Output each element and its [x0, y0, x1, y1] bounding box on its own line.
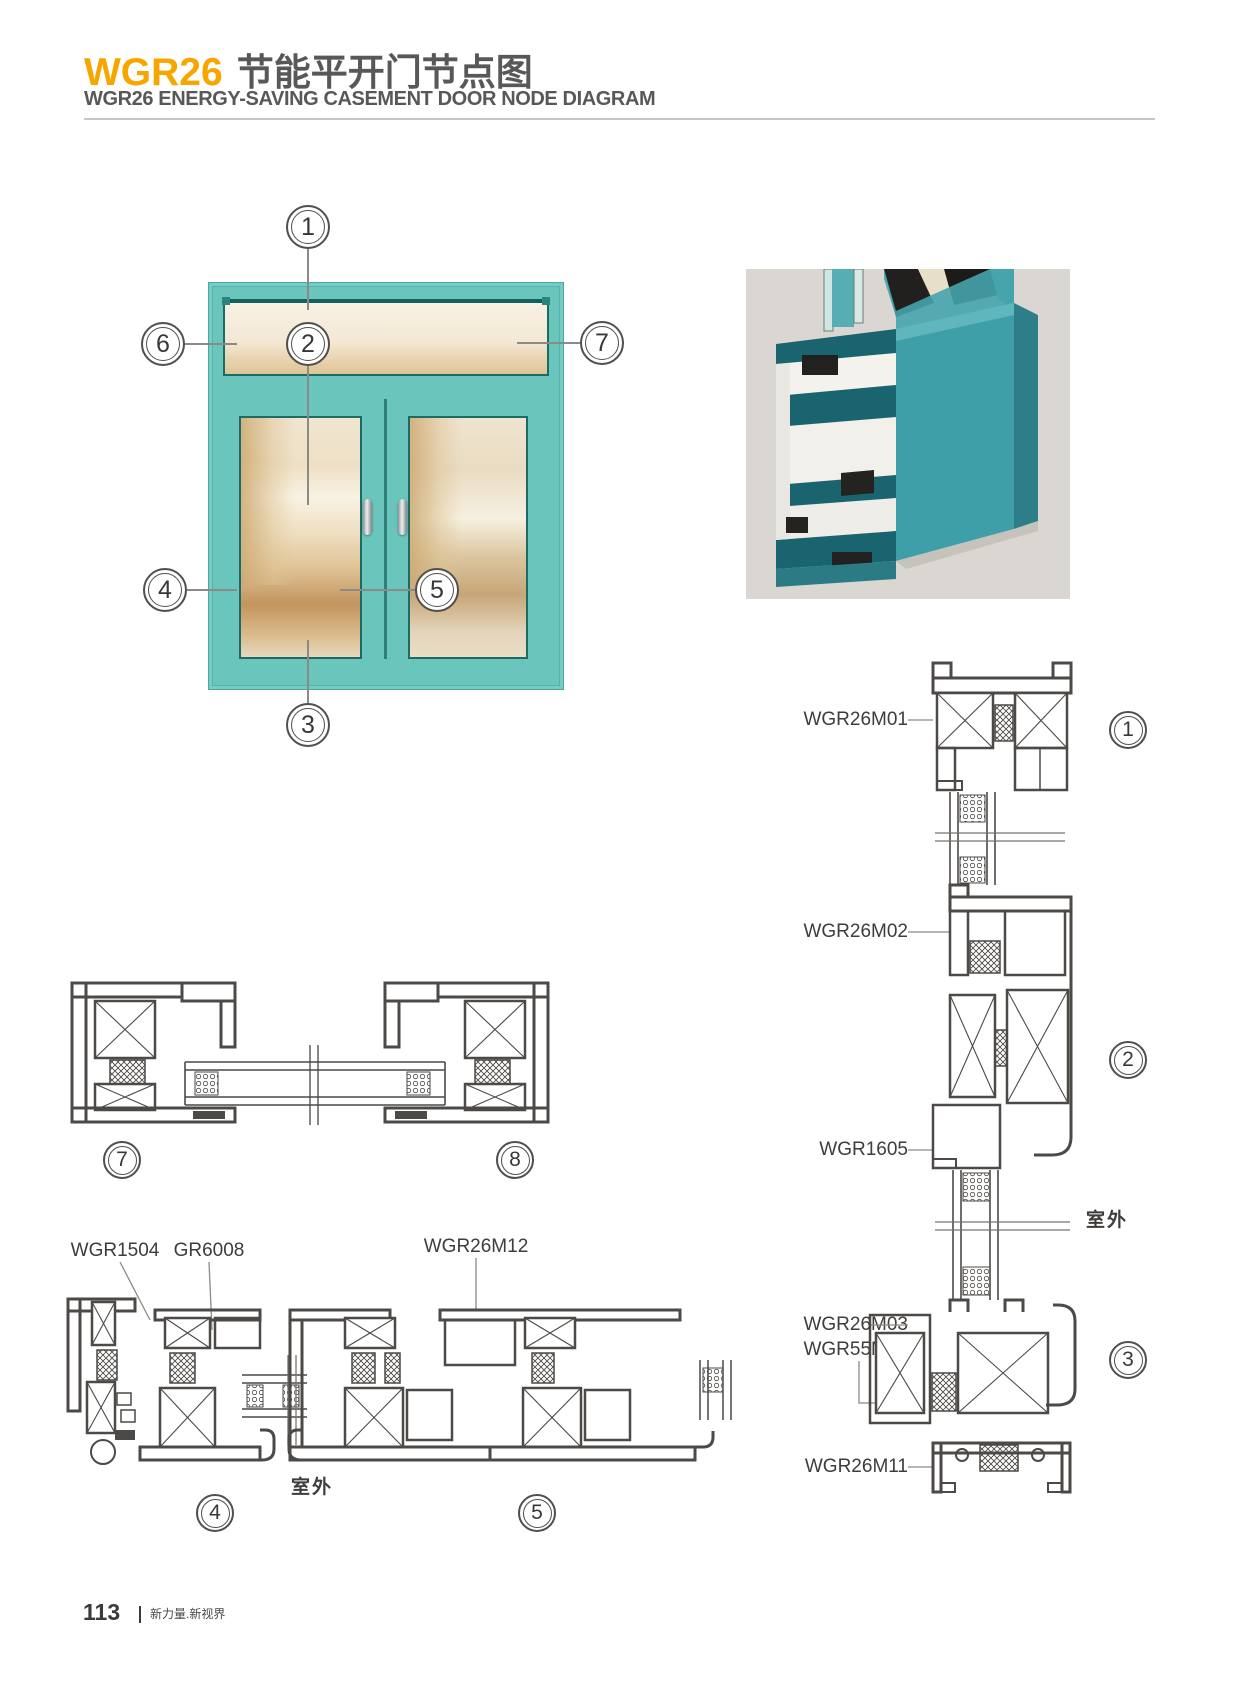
- transom-corner-left: [222, 297, 230, 305]
- left-door-handle: [363, 499, 372, 535]
- door-mullion: [384, 399, 387, 659]
- page-subtitle-english: WGR26 ENERGY-SAVING CASEMENT DOOR NODE D…: [84, 88, 655, 111]
- curtain-decor: [241, 418, 295, 585]
- leader-line: [307, 366, 309, 505]
- outdoor-label-bottom: 室外: [291, 1472, 333, 1499]
- leader-line: [185, 343, 237, 345]
- footer-slogan: 新力量.新视界: [139, 1606, 225, 1623]
- page-title-chinese: 节能平开门节点图: [237, 52, 533, 93]
- callout-1-drawing: 1: [1109, 711, 1147, 749]
- curtain-decor: [410, 418, 462, 585]
- callout-2-drawing: 2: [1109, 1041, 1147, 1079]
- transom-glass: [223, 299, 549, 376]
- callout-2-window: 2: [286, 322, 330, 366]
- right-door-handle: [398, 499, 407, 535]
- callout-7-window: 7: [580, 321, 624, 365]
- leader-line: [307, 640, 309, 703]
- profile-3d-render: [746, 269, 1070, 599]
- callout-3-drawing: 3: [1109, 1341, 1147, 1379]
- callout-5-window: 5: [415, 568, 459, 612]
- page-number: 113: [83, 1599, 120, 1626]
- callout-5-drawing: 5: [518, 1494, 556, 1532]
- leader-line: [517, 342, 580, 344]
- callout-6-window: 6: [141, 322, 185, 366]
- callout-1-window: 1: [286, 205, 330, 249]
- node-drawing-section-4-5: [55, 1235, 745, 1525]
- casement-door-illustration: [208, 282, 564, 690]
- leader-line: [307, 249, 309, 310]
- leader-line: [340, 589, 415, 591]
- catalog-page: WGR26节能平开门节点图 WGR26 ENERGY-SAVING CASEME…: [0, 0, 1239, 1681]
- callout-8-drawing: 8: [496, 1141, 534, 1179]
- transom-corner-right: [542, 297, 550, 305]
- header-divider: [84, 118, 1155, 120]
- right-door-glass: [408, 416, 528, 659]
- callout-4-drawing: 4: [196, 1494, 234, 1532]
- callout-3-window: 3: [286, 703, 330, 747]
- profile-3d-render-art: [746, 269, 1070, 599]
- callout-7-drawing: 7: [103, 1141, 141, 1179]
- node-drawing-vertical-section: [850, 645, 1090, 1505]
- outdoor-label-right: 室外: [1086, 1205, 1128, 1232]
- callout-4-window: 4: [143, 568, 187, 612]
- left-door-glass: [239, 416, 362, 659]
- leader-line: [187, 589, 237, 591]
